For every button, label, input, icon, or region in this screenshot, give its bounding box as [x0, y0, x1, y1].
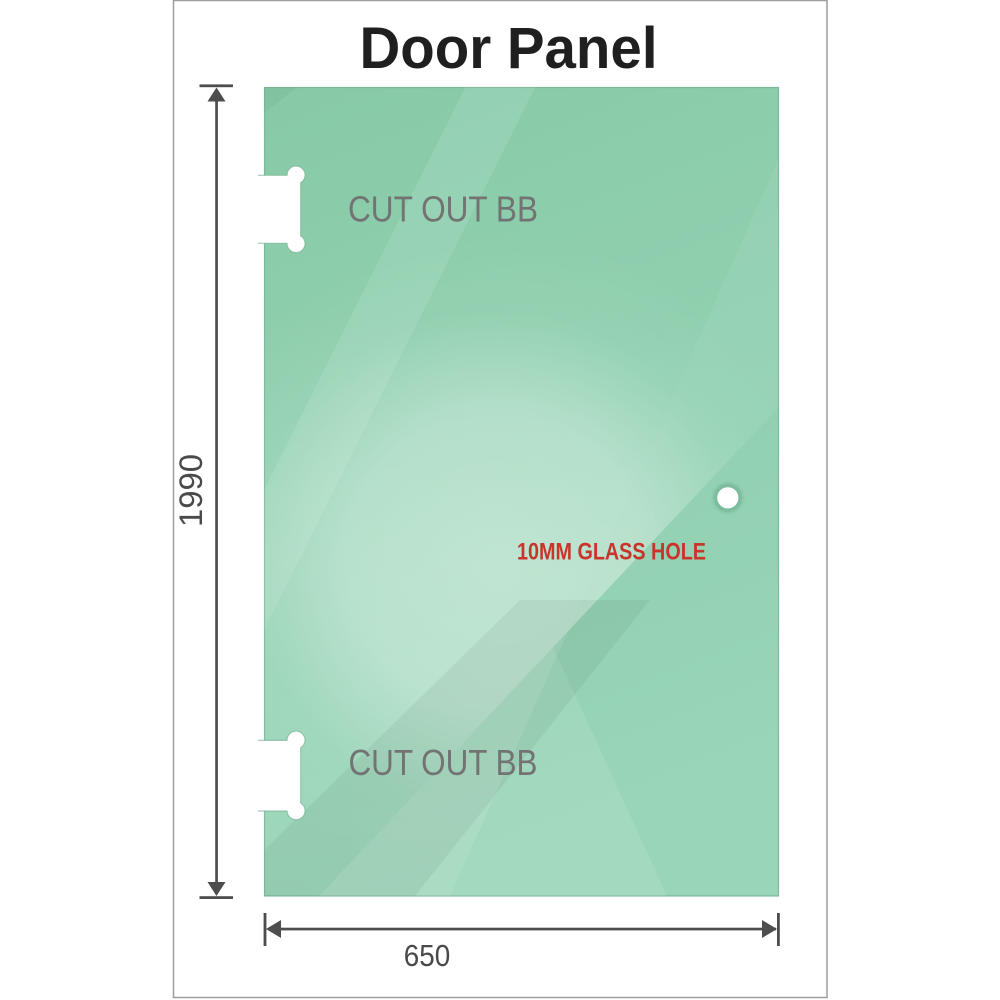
svg-text:Door Panel: Door Panel [360, 16, 658, 81]
svg-text:1990: 1990 [173, 454, 209, 527]
svg-text:10MM GLASS HOLE: 10MM GLASS HOLE [517, 539, 706, 566]
svg-text:CUT OUT BB: CUT OUT BB [349, 742, 538, 783]
svg-text:CUT OUT BB: CUT OUT BB [348, 189, 538, 230]
svg-text:650: 650 [404, 938, 451, 973]
